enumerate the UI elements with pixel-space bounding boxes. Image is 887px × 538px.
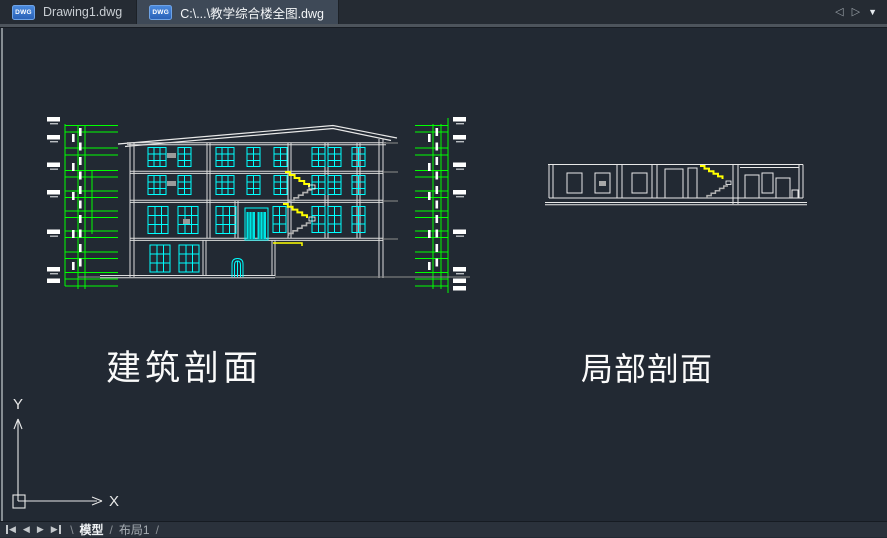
tab-scroll-controls: ◁ ▷ ▼ [835, 0, 887, 24]
ucs-y-label: Y [13, 396, 23, 413]
windows-floor2 [148, 207, 365, 234]
tab-scroll-right-icon[interactable]: ▷ [852, 7, 860, 18]
building-section-drawing[interactable] [45, 112, 475, 298]
dwg-file-icon: DWG [149, 5, 172, 20]
windows-floor4 [148, 148, 365, 167]
right-dimension-ladder [415, 118, 448, 293]
ucs-x-label: X [109, 493, 119, 510]
right-dimension-text [428, 117, 466, 291]
prev-layout-icon[interactable]: ◀ [23, 525, 30, 534]
layout1-tab[interactable]: 布局1 [119, 521, 150, 538]
next-layout-icon[interactable]: ▶ [37, 525, 44, 534]
tab-separator: / [110, 523, 113, 537]
wall-floor-lines [100, 139, 386, 278]
file-tab-active-document[interactable]: DWG C:\...\教学综合楼全图.dwg [137, 0, 339, 24]
file-tab-drawing1[interactable]: DWG Drawing1.dwg [0, 0, 137, 24]
tab-separator: / [156, 523, 159, 537]
windows-floor1 [150, 245, 243, 277]
tab-list-dropdown-icon[interactable]: ▼ [868, 8, 877, 17]
roof-outline [118, 126, 397, 147]
file-tab-bar: DWG Drawing1.dwg DWG C:\...\教学综合楼全图.dwg … [0, 0, 887, 24]
partial-section-text[interactable]: 局部剖面 [581, 350, 713, 388]
file-tab-label: C:\...\教学综合楼全图.dwg [180, 3, 324, 22]
entrance-door [245, 208, 268, 240]
partial-stair [700, 166, 731, 198]
building-section-text[interactable]: 建筑剖面 [106, 348, 262, 390]
layout-tab-bar: ◀ ◀ ▶ ▶ \ 模型 / 布局1 / [0, 521, 887, 537]
tab-separator: \ [70, 523, 73, 537]
partial-room-text [599, 181, 606, 186]
file-tab-label: Drawing1.dwg [43, 5, 122, 19]
tab-scroll-left-icon[interactable]: ◁ [835, 7, 843, 18]
model-space-canvas[interactable]: 建筑剖面 局部剖面 Y X [0, 28, 887, 521]
windows-floor3 [148, 176, 365, 195]
partial-walls [545, 165, 807, 205]
canvas-left-edge [1, 28, 3, 521]
model-tab[interactable]: 模型 [80, 521, 104, 538]
last-layout-icon[interactable]: ▶ [51, 525, 61, 534]
partial-section-drawing[interactable] [545, 160, 807, 208]
ucs-icon: Y X [5, 395, 135, 520]
dwg-file-icon: DWG [12, 5, 35, 20]
first-layout-icon[interactable]: ◀ [6, 525, 16, 534]
